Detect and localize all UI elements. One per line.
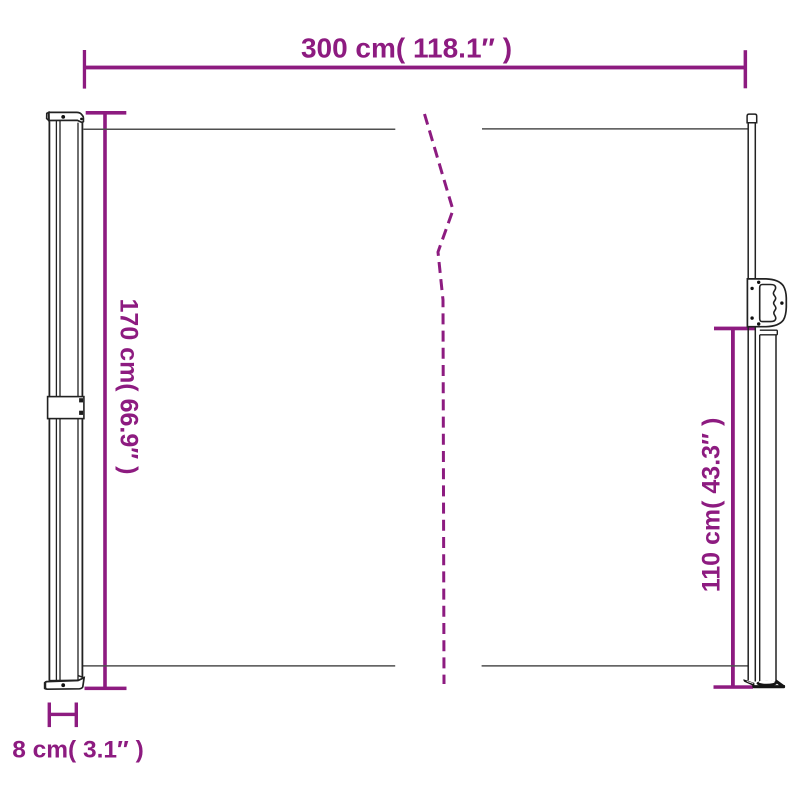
svg-text:8 cm( 3.1″ ): 8 cm( 3.1″ ) — [12, 737, 144, 764]
svg-text:300 cm( 118.1″ ): 300 cm( 118.1″ ) — [301, 33, 512, 64]
svg-text:170 cm( 66.9″ ): 170 cm( 66.9″ ) — [114, 299, 142, 475]
svg-text:110 cm( 43.3″ ): 110 cm( 43.3″ ) — [698, 418, 726, 593]
